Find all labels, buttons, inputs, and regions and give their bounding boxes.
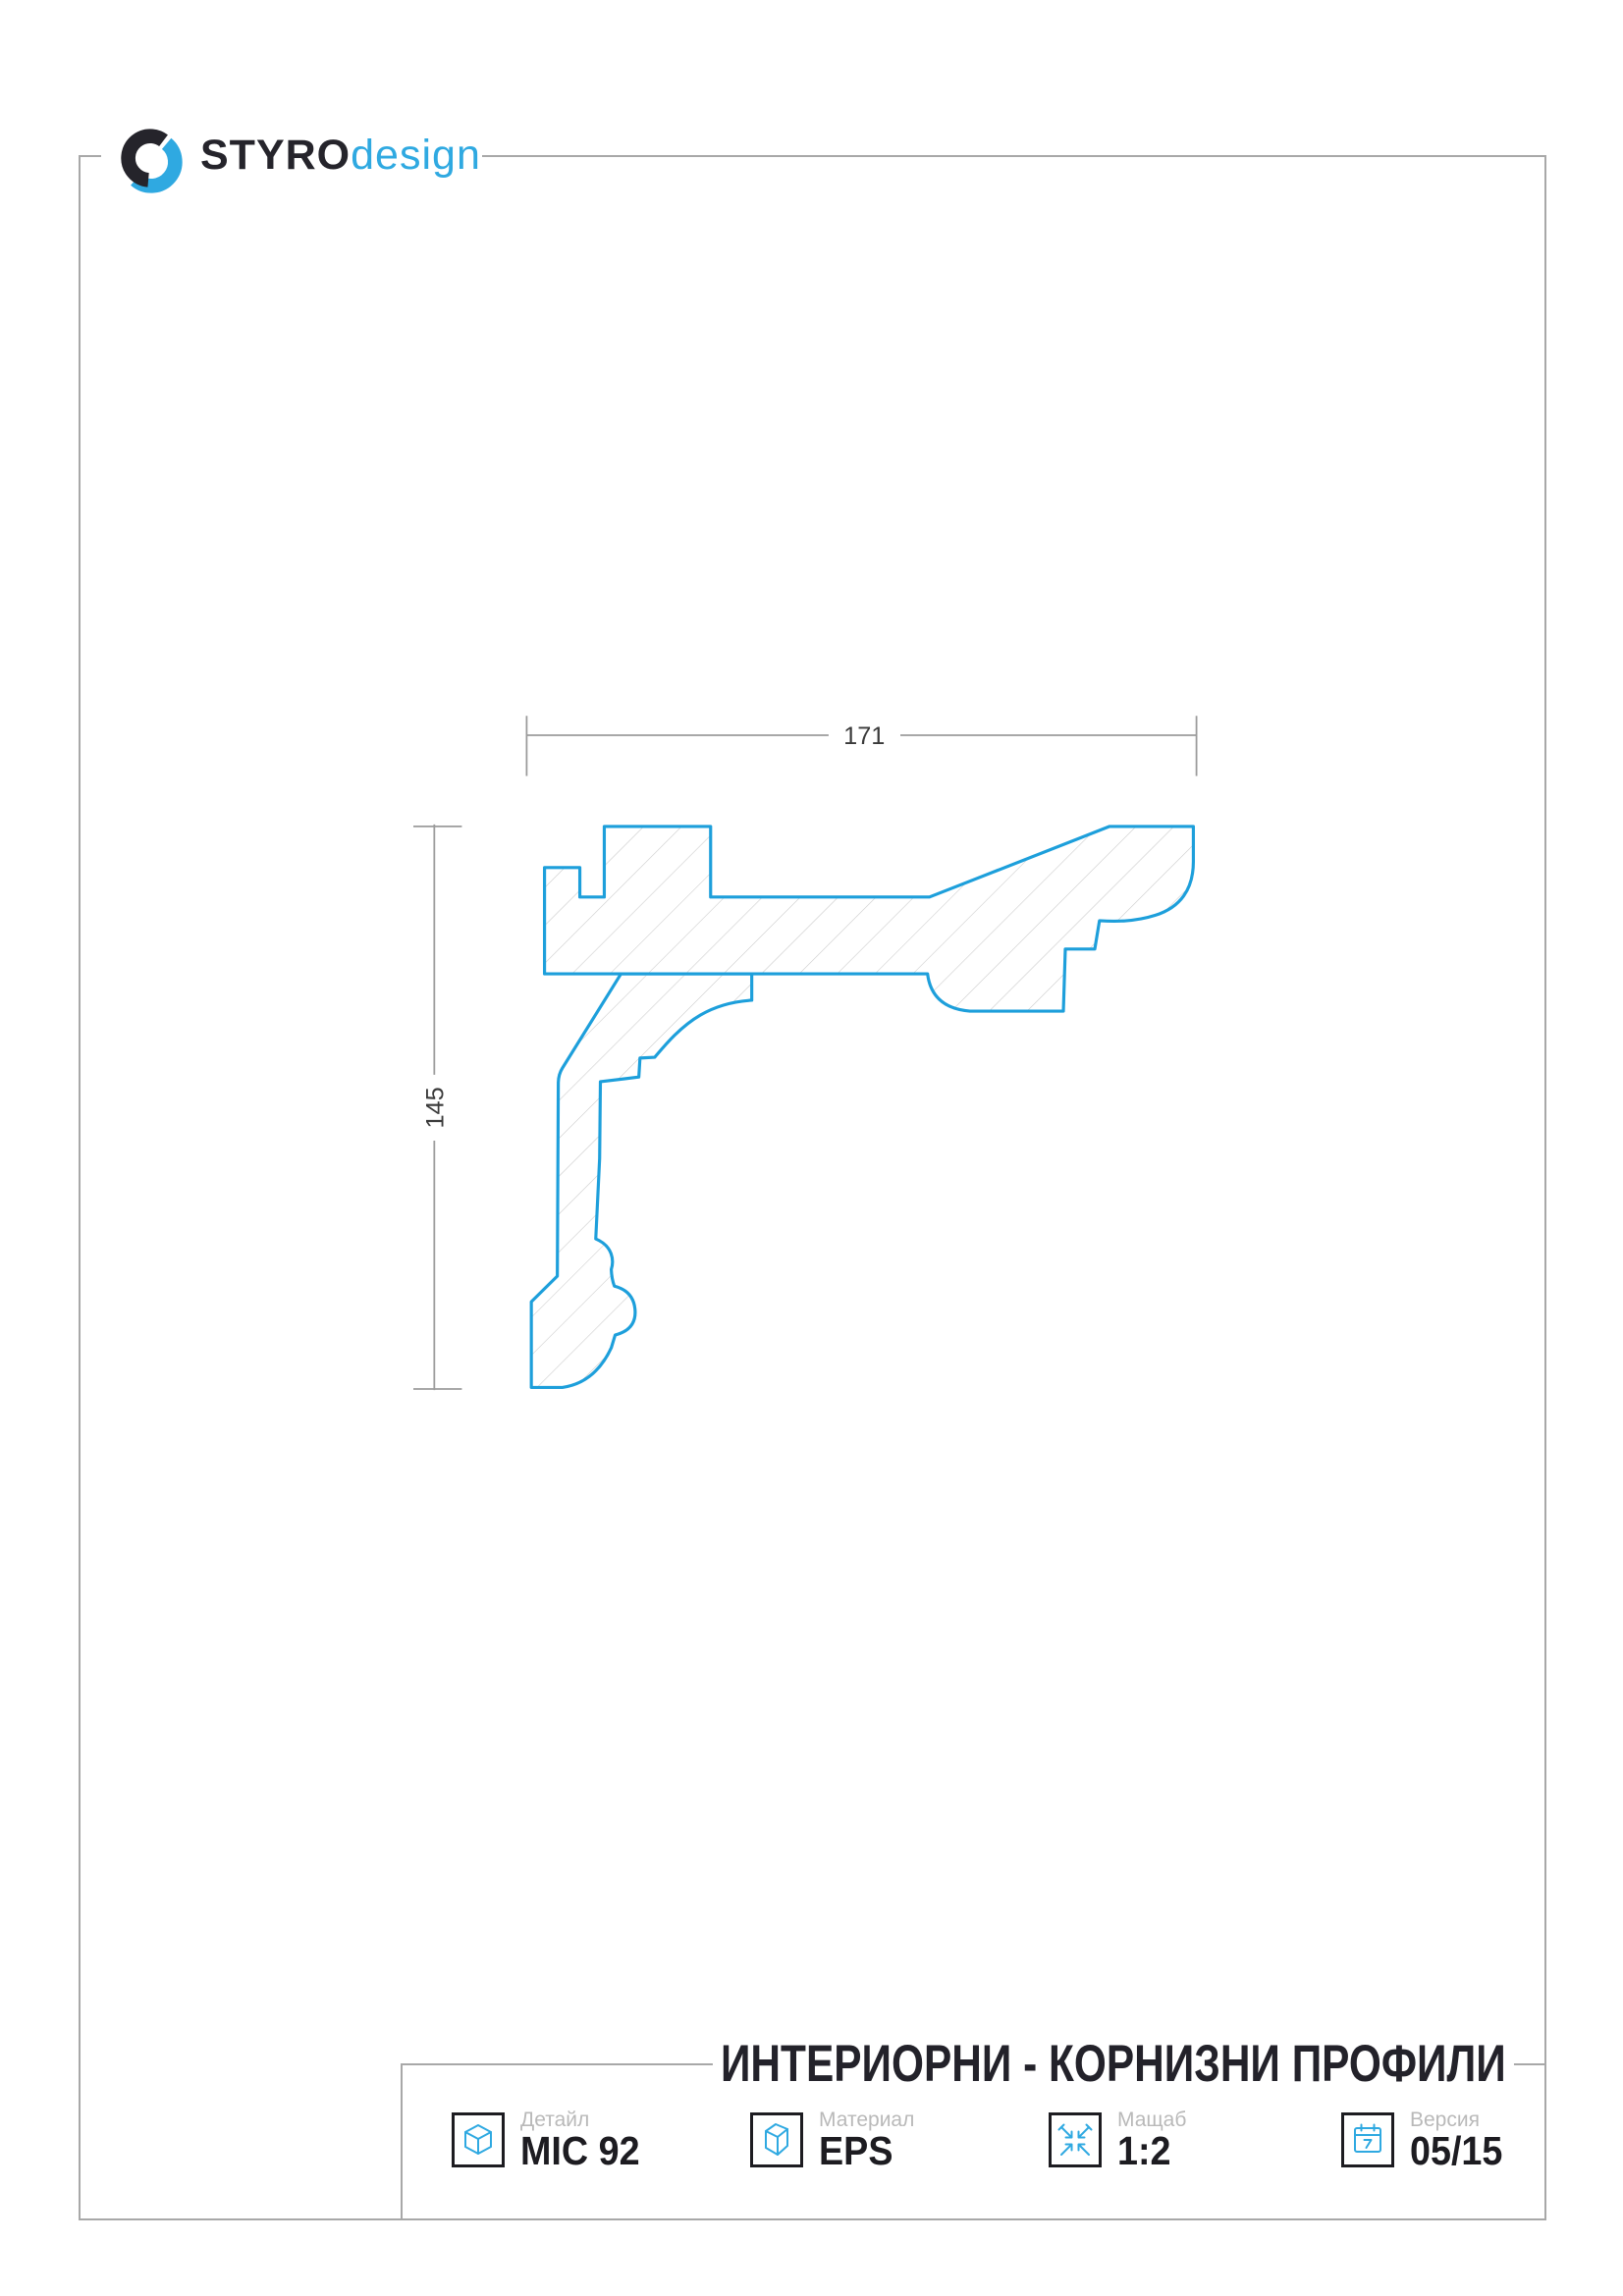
scale-arrows-icon bbox=[1055, 2118, 1095, 2162]
brand-name-bold: STYRO bbox=[200, 132, 351, 179]
width-dimension: 171 bbox=[526, 716, 1196, 775]
styro-swirl-icon bbox=[114, 124, 189, 198]
cube-icon bbox=[459, 2118, 498, 2162]
detail-icon-box bbox=[452, 2112, 505, 2167]
material-icon-box bbox=[750, 2112, 803, 2167]
material-value: EPS bbox=[819, 2128, 893, 2174]
drawing-sheet: STYROdesign 171 145 bbox=[0, 0, 1623, 2296]
scale-value: 1:2 bbox=[1117, 2128, 1171, 2174]
version-icon-box bbox=[1341, 2112, 1394, 2167]
brand-name-light: design bbox=[351, 132, 481, 179]
detail-value: MIC 92 bbox=[520, 2128, 640, 2174]
sheet-title: ИНТЕРИОРНИ - КОРНИЗНИ ПРОФИЛИ bbox=[713, 2037, 1514, 2092]
version-value: 05/15 bbox=[1410, 2128, 1502, 2174]
profile-lower-section bbox=[531, 974, 751, 1387]
material-box-icon bbox=[757, 2118, 796, 2162]
title-block-left-line bbox=[401, 2063, 403, 2218]
cornice-profile-drawing: 171 145 bbox=[413, 710, 1228, 1416]
scale-icon-box bbox=[1049, 2112, 1102, 2167]
height-dimension-label: 145 bbox=[421, 1087, 449, 1128]
brand-name: STYROdesign bbox=[200, 133, 481, 177]
calendar-icon bbox=[1348, 2118, 1387, 2162]
width-dimension-label: 171 bbox=[843, 722, 885, 750]
height-dimension: 145 bbox=[413, 825, 461, 1390]
